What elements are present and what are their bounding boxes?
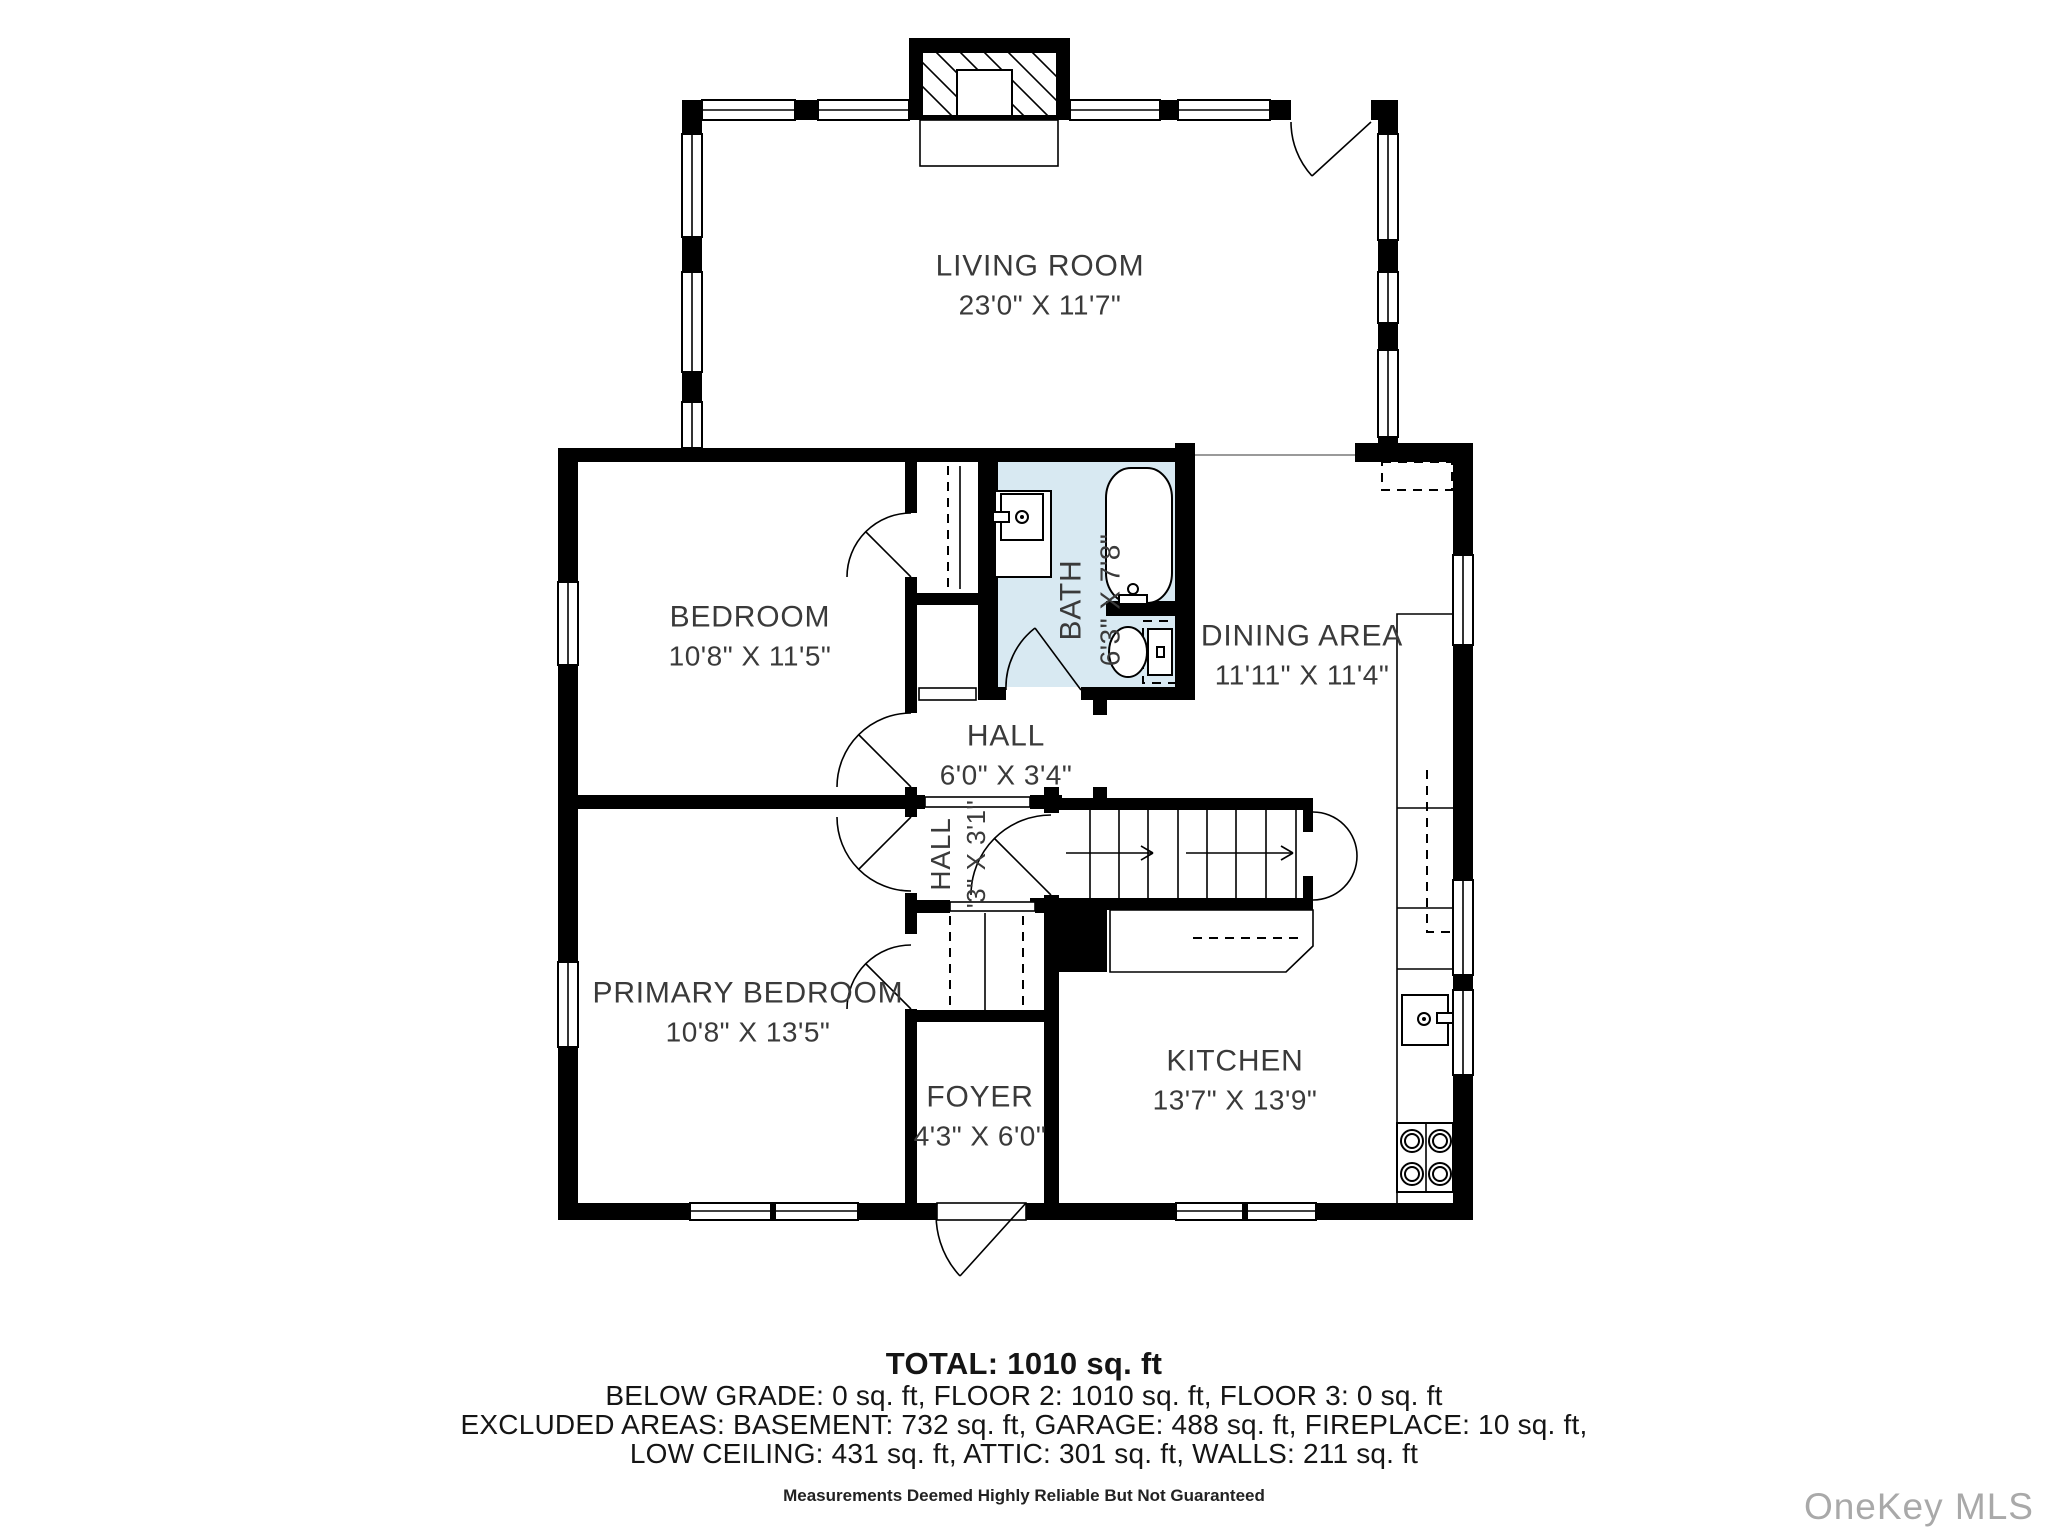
room-dims: 11'11" X 11'4" bbox=[1201, 659, 1403, 692]
room-name: DINING AREA bbox=[1201, 618, 1403, 653]
room-dims: 23'0" X 11'7" bbox=[936, 289, 1145, 322]
fireplace-hearth bbox=[920, 120, 1058, 166]
under-stair-storage bbox=[1110, 910, 1313, 972]
room-label-bedroom: BEDROOM 10'8" X 11'5" bbox=[669, 599, 832, 672]
summary-disclaimer: Measurements Deemed Highly Reliable But … bbox=[783, 1486, 1265, 1506]
stairs-direction-arrows bbox=[1066, 846, 1293, 860]
room-label-kitchen: KITCHEN 13'7" X 13'9" bbox=[1153, 1043, 1318, 1116]
room-name: HALL bbox=[924, 800, 957, 909]
room-label-hall: HALL 6'0" X 3'4" bbox=[940, 718, 1073, 791]
room-dims: 10'8" X 13'5" bbox=[593, 1016, 904, 1049]
kitchen-sink bbox=[1402, 995, 1453, 1045]
room-dims: 6'3" X 7'8" bbox=[1094, 534, 1127, 667]
fireplace bbox=[888, 38, 1096, 166]
summary-total: TOTAL: 1010 sq. ft bbox=[886, 1346, 1162, 1382]
room-dims: '3" X 3'1" bbox=[961, 800, 992, 909]
room-dims: 4'3" X 6'0" bbox=[914, 1120, 1047, 1153]
room-label-living-room: LIVING ROOM 23'0" X 11'7" bbox=[936, 248, 1145, 321]
room-name: BATH bbox=[1053, 534, 1088, 667]
stove bbox=[1397, 1123, 1453, 1192]
onekey-mls-watermark: OneKey MLS bbox=[1804, 1486, 2034, 1528]
room-label-bath: BATH 6'3" X 7'8" bbox=[1053, 534, 1126, 667]
summary-line-3: LOW CEILING: 431 sq. ft, ATTIC: 301 sq. … bbox=[630, 1438, 1418, 1470]
room-name: BEDROOM bbox=[669, 599, 832, 634]
room-label-foyer: FOYER 4'3" X 6'0" bbox=[914, 1079, 1047, 1152]
kitchen-counter bbox=[1382, 462, 1455, 1203]
room-name: LIVING ROOM bbox=[936, 248, 1145, 283]
room-name: HALL bbox=[940, 718, 1073, 753]
staircase bbox=[1066, 810, 1357, 900]
bathroom-vanity-sink bbox=[993, 491, 1051, 577]
summary-line-2: EXCLUDED AREAS: BASEMENT: 732 sq. ft, GA… bbox=[461, 1409, 1588, 1441]
room-label-hall-lower: HALL '3" X 3'1" bbox=[924, 800, 992, 909]
room-label-dining-area: DINING AREA 11'11" X 11'4" bbox=[1201, 618, 1403, 691]
room-dims: 10'8" X 11'5" bbox=[669, 640, 832, 673]
summary-line-1: BELOW GRADE: 0 sq. ft, FLOOR 2: 1010 sq.… bbox=[605, 1380, 1442, 1412]
basement-door-swing bbox=[1313, 812, 1357, 900]
room-dims: 13'7" X 13'9" bbox=[1153, 1084, 1318, 1117]
upper-cabinet-dashed bbox=[1382, 462, 1452, 490]
linen-closet-front bbox=[919, 688, 976, 700]
chimney bbox=[1059, 900, 1107, 972]
room-dims: 6'0" X 3'4" bbox=[940, 759, 1073, 792]
room-name: FOYER bbox=[914, 1079, 1047, 1114]
room-name: PRIMARY BEDROOM bbox=[593, 975, 904, 1010]
room-label-primary-bedroom: PRIMARY BEDROOM 10'8" X 13'5" bbox=[593, 975, 904, 1048]
room-name: KITCHEN bbox=[1153, 1043, 1318, 1078]
floor-plan-page: LIVING ROOM 23'0" X 11'7" BEDROOM 10'8" … bbox=[0, 0, 2048, 1536]
